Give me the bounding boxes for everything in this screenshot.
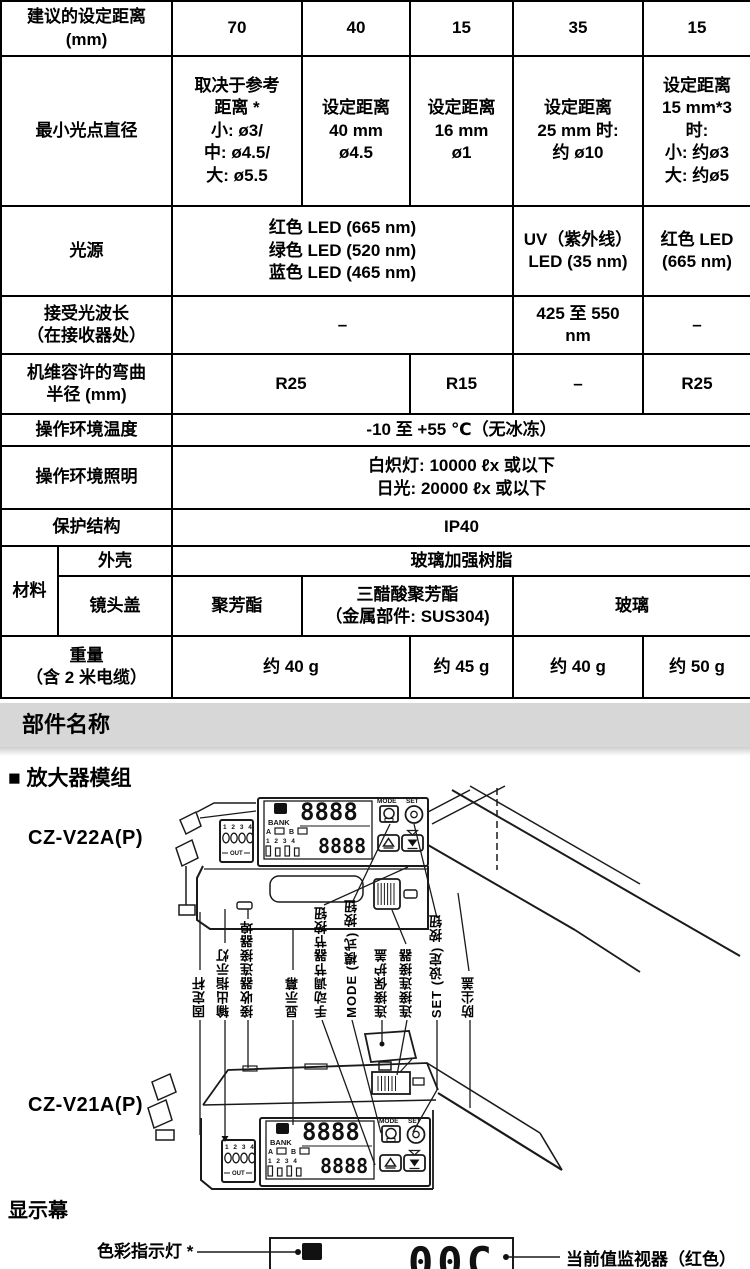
spec-cell: 设定距离 15 mm*3 时: 小: 约ø3 大: 约ø5 xyxy=(643,56,750,206)
table-row: 接受光波长 （在接收器处） – 425 至 550 nm – xyxy=(1,296,750,354)
part-label-connection-connector: 连接连接器 xyxy=(397,948,417,1018)
part-label-protective-cover: 连接保护盖 xyxy=(372,948,392,1018)
table-row: 建议的设定距离 (mm) 70 40 15 35 15 xyxy=(1,1,750,56)
perspective-lines xyxy=(428,786,740,972)
color-badge-letter: C xyxy=(307,1244,317,1260)
part-label-display: 显示幕 xyxy=(283,976,303,1018)
part-label-mode-button: MODE (模式) 按钮 xyxy=(342,899,362,1018)
part-label-dust-cover: 防尘盖 xyxy=(459,976,479,1018)
spec-cell: 设定距离 25 mm 时: 约 ø10 xyxy=(513,56,643,206)
spec-cell: 设定距离 16 mm ø1 xyxy=(410,56,513,206)
table-row: 重量 （含 2 米电缆） 约 40 g 约 45 g 约 40 g 约 50 g xyxy=(1,636,750,698)
spec-cell: R25 xyxy=(643,354,750,414)
spec-row-label: 重量 （含 2 米电缆） xyxy=(1,636,172,698)
spec-cell: 70 xyxy=(172,1,302,56)
spec-cell: 红色 LED (665 nm) xyxy=(643,206,750,296)
table-row: 材料 外壳 玻璃加强树脂 xyxy=(1,546,750,576)
perspective-lines xyxy=(427,1063,562,1170)
spec-cell: 玻璃加强树脂 xyxy=(172,546,750,576)
table-row: 操作环境照明 白炽灯: 10000 ℓx 或以下 日光: 20000 ℓx 或以… xyxy=(1,446,750,509)
spec-cell: 约 50 g xyxy=(643,636,750,698)
spec-cell: 设定距离 40 mm ø4.5 xyxy=(302,56,410,206)
connection-protective-cover xyxy=(365,1031,416,1062)
spec-cell: R15 xyxy=(410,354,513,414)
spec-cell: 35 xyxy=(513,1,643,56)
spec-row-label: 接受光波长 （在接收器处） xyxy=(1,296,172,354)
socket-hatch xyxy=(378,1076,396,1091)
spec-cell: 425 至 550 nm xyxy=(513,296,643,354)
spec-cell: 聚芳酯 xyxy=(172,576,302,636)
part-label-fixing-lever: 固定杆 xyxy=(190,976,210,1018)
spec-cell: R25 xyxy=(172,354,410,414)
banner-shadow xyxy=(0,747,750,756)
spec-table: 建议的设定距离 (mm) 70 40 15 35 15 最小光点直径 取决于参考… xyxy=(0,0,750,699)
part-label-manual-adjust-button: 手动调节器节按钮 xyxy=(312,906,332,1018)
spec-row-label: 操作环境照明 xyxy=(1,446,172,509)
spec-cell: -10 至 +55 ℃（无冰冻） xyxy=(172,414,750,446)
spec-row-label: 光源 xyxy=(1,206,172,296)
display-screen-diagram: C 00C xyxy=(0,1225,750,1269)
spec-row-label: 最小光点直径 xyxy=(1,56,172,206)
table-row: 最小光点直径 取决于参考 距离 * 小: ø3/ 中: ø4.5/ 大: ø5.… xyxy=(1,56,750,206)
spec-cell: 约 40 g xyxy=(513,636,643,698)
table-row: 镜头盖 聚芳酯 三醋酸聚芳酯 （金属部件: SUS304) 玻璃 xyxy=(1,576,750,636)
table-row: 机维容许的弯曲 半径 (mm) R25 R15 – R25 xyxy=(1,354,750,414)
spec-cell: 取决于参考 距离 * 小: ø3/ 中: ø4.5/ 大: ø5.5 xyxy=(172,56,302,206)
spec-cell: – xyxy=(172,296,513,354)
table-row: 操作环境温度 -10 至 +55 ℃（无冰冻） xyxy=(1,414,750,446)
spec-row-label: 材料 xyxy=(1,546,58,636)
current-value-digits: 00C xyxy=(408,1238,496,1269)
display-section-heading: 显示幕 xyxy=(8,1194,68,1223)
spec-cell: 红色 LED (665 nm) 绿色 LED (520 nm) 蓝色 LED (… xyxy=(172,206,513,296)
spec-row-label: 保护结构 xyxy=(1,509,172,546)
table-row: 光源 红色 LED (665 nm) 绿色 LED (520 nm) 蓝色 LE… xyxy=(1,206,750,296)
spec-cell: 40 xyxy=(302,1,410,56)
spec-cell: 15 xyxy=(410,1,513,56)
spec-row-sublabel: 外壳 xyxy=(58,546,172,576)
part-label-output-indicator: 输出指示灯 xyxy=(214,948,234,1018)
part-label-set-button: SET (设定) 按钮 xyxy=(427,914,447,1018)
spec-cell: 白炽灯: 10000 ℓx 或以下 日光: 20000 ℓx 或以下 xyxy=(172,446,750,509)
spec-cell: 约 40 g xyxy=(172,636,410,698)
spec-cell: 三醋酸聚芳酯 （金属部件: SUS304) xyxy=(302,576,513,636)
spec-row-label: 机维容许的弯曲 半径 (mm) xyxy=(1,354,172,414)
spec-cell: UV（紫外线） LED (35 nm) xyxy=(513,206,643,296)
manual-page: 建议的设定距离 (mm) 70 40 15 35 15 最小光点直径 取决于参考… xyxy=(0,0,750,1269)
section-banner: 部件名称 xyxy=(0,703,750,747)
spec-cell: – xyxy=(513,354,643,414)
connector-hatch xyxy=(378,883,394,905)
spec-cell: 15 xyxy=(643,1,750,56)
fixing-lever xyxy=(180,812,201,834)
spec-cell: IP40 xyxy=(172,509,750,546)
part-label-receiver-port: 接收器连接器埠 xyxy=(238,920,258,1018)
spec-cell: 约 45 g xyxy=(410,636,513,698)
table-row: 保护结构 IP40 xyxy=(1,509,750,546)
spec-row-sublabel: 镜头盖 xyxy=(58,576,172,636)
spec-row-label: 操作环境温度 xyxy=(1,414,172,446)
spec-row-label: 建议的设定距离 (mm) xyxy=(1,1,172,56)
spec-cell: – xyxy=(643,296,750,354)
cz-v22a-diagram xyxy=(176,786,740,972)
spec-cell: 玻璃 xyxy=(513,576,750,636)
